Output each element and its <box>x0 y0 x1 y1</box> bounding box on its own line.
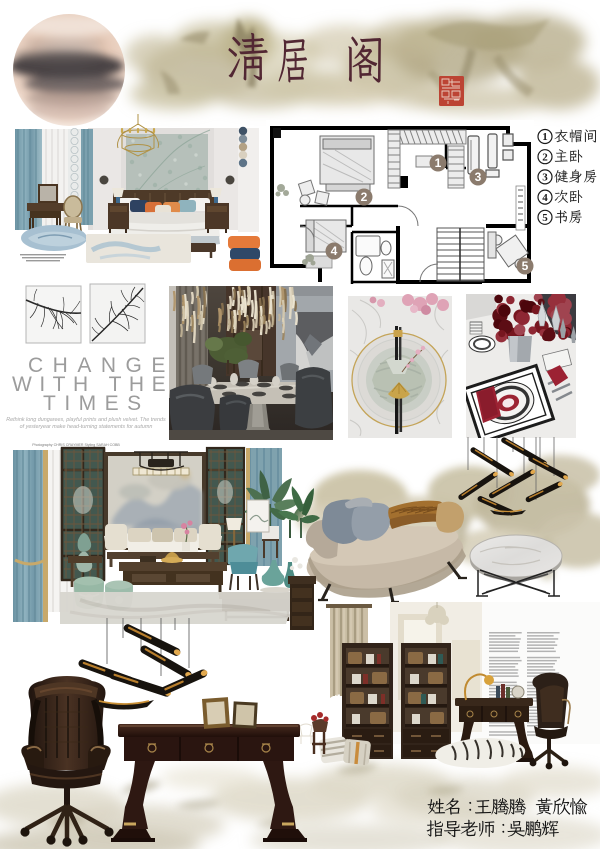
svg-text:2: 2 <box>542 151 548 163</box>
svg-text:Rethink long dungarees, playfu: Rethink long dungarees, playful prints a… <box>6 417 166 423</box>
svg-text:3: 3 <box>475 170 482 184</box>
svg-text:4: 4 <box>542 192 548 204</box>
svg-text:1: 1 <box>542 131 548 143</box>
svg-text:of yesteryear make head-turnin: of yesteryear make head-turning statemen… <box>20 424 153 430</box>
svg-text:4: 4 <box>331 244 338 258</box>
svg-text:2: 2 <box>361 190 368 204</box>
svg-text:Photography CHRIS CRAYMER St: Photography CHRIS CRAYMER Styling SARAH … <box>32 443 120 447</box>
svg-text:TIMES: TIMES <box>43 392 150 415</box>
svg-text:3: 3 <box>542 172 548 184</box>
svg-text:1: 1 <box>435 156 442 170</box>
svg-text:5: 5 <box>542 212 548 224</box>
svg-text:5: 5 <box>522 259 529 273</box>
